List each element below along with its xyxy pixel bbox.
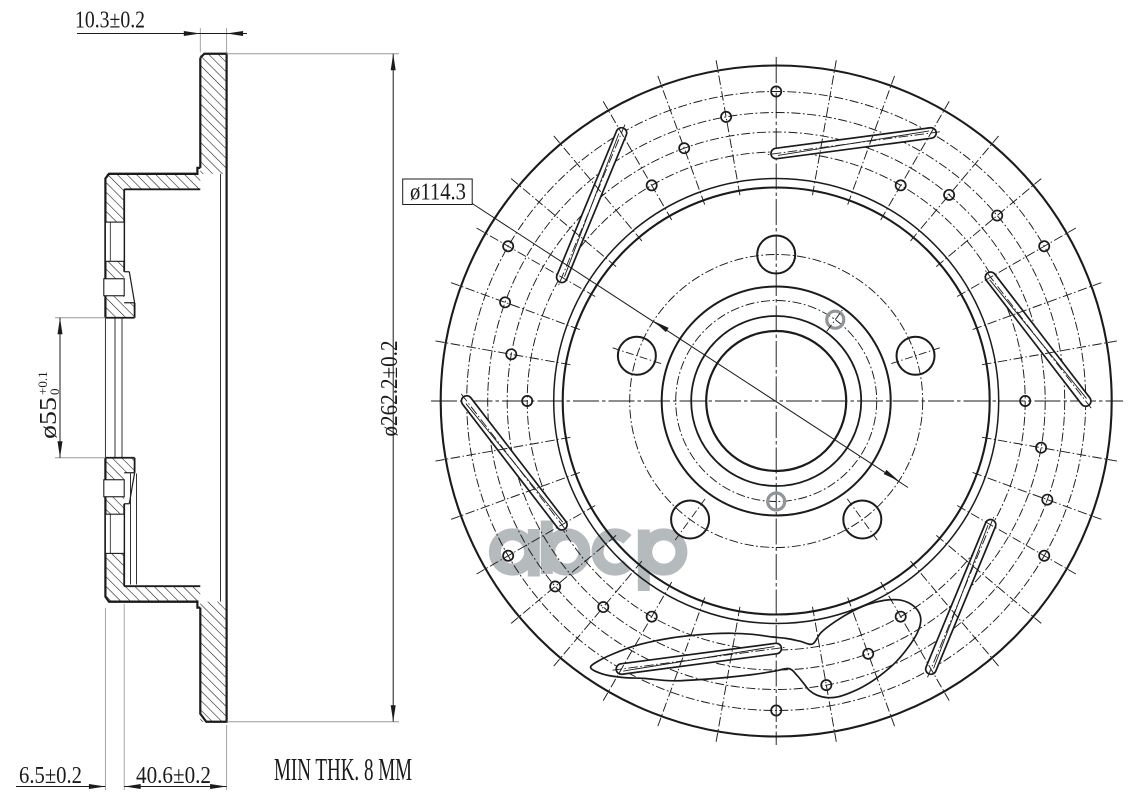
svg-text:ø262.2±0.2: ø262.2±0.2	[377, 341, 403, 437]
svg-text:10.3±0.2: 10.3±0.2	[75, 8, 145, 34]
svg-text:0: 0	[47, 389, 62, 396]
svg-text:ø55: ø55	[36, 397, 62, 439]
svg-text:ø114.3: ø114.3	[410, 180, 466, 206]
svg-text:MIN THK. 8 MM: MIN THK. 8 MM	[274, 751, 412, 787]
svg-text:6.5±0.2: 6.5±0.2	[19, 763, 82, 789]
svg-text:40.6±0.2: 40.6±0.2	[136, 763, 211, 789]
